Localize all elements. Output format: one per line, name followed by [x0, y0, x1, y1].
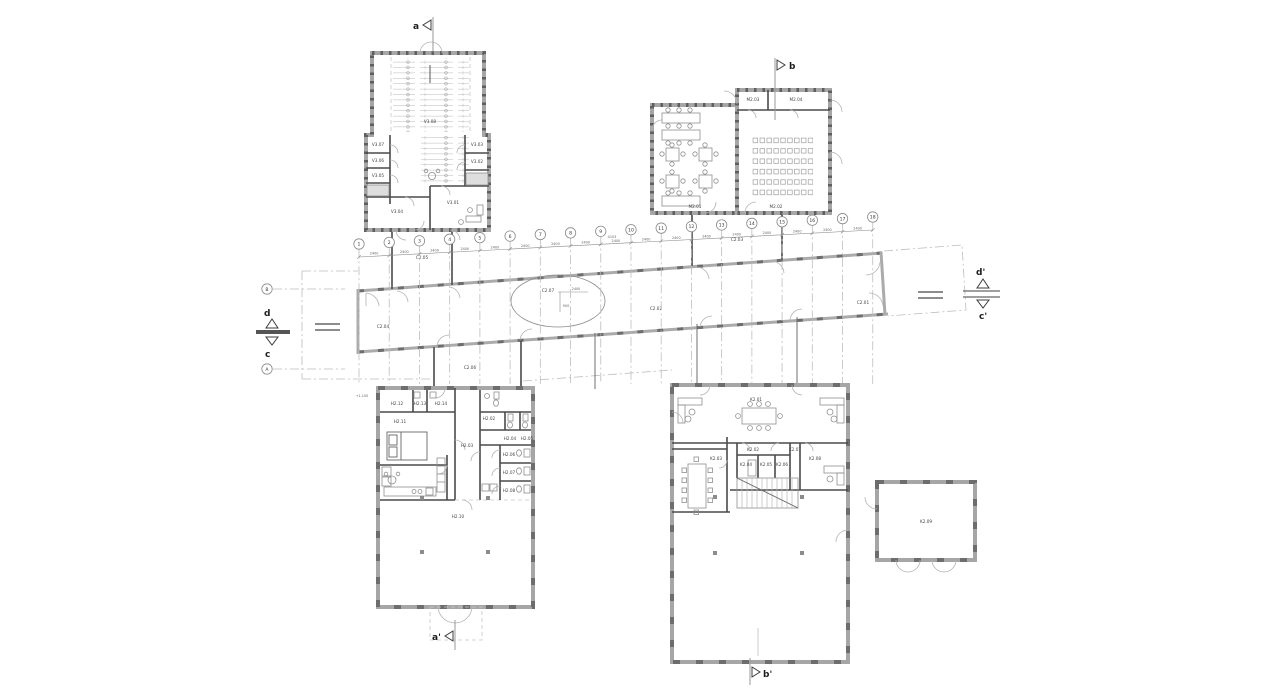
bay-dim: 2400 [763, 231, 772, 235]
grid-number: 18 [870, 215, 876, 221]
grid-dim-wide: 4103 [608, 235, 617, 239]
grid-number: 4 [448, 237, 451, 243]
section-label-c-prime: c' [979, 312, 987, 322]
room-label: V3.03 [471, 142, 484, 147]
corridor: 2400 900 C2.04 C2.05 C2.06 C2.07 C2.02 C… [358, 215, 888, 389]
room-label: H2.03 [461, 443, 474, 448]
grid-number: 15 [779, 219, 785, 225]
section-label-c: c [265, 350, 270, 360]
room-label: H2.04 [504, 436, 517, 441]
bay-dim: 2400 [491, 245, 500, 249]
ellipse-dim-h: 900 [563, 304, 569, 308]
room-label: C2.01 [857, 300, 870, 305]
room-label: H2.13 [414, 401, 427, 406]
grid-number: 5 [478, 235, 481, 241]
room-label: C2.06 [464, 365, 477, 370]
grid-number: 12 [688, 224, 694, 230]
room-label: V3.01 [447, 200, 460, 205]
grid: 1240022400324004240052400624007240082400… [262, 212, 878, 384]
bay-dim: 2400 [642, 237, 651, 241]
room-label: K2.05 [760, 462, 772, 467]
grid-number: 10 [628, 227, 634, 233]
room-label: V3.05 [372, 173, 385, 178]
floor-plan: 2400 900 C2.04 C2.05 C2.06 C2.07 C2.02 C… [0, 0, 1280, 700]
room-label: M2.04 [790, 97, 803, 102]
room-label: C2.04 [377, 324, 390, 329]
bay-dim: 2400 [612, 239, 621, 243]
grid-number: 9 [599, 229, 602, 235]
room-label: H2.10 [452, 514, 465, 519]
room-label: H2.07 [503, 470, 516, 475]
room-label: K2.03 [710, 456, 722, 461]
room-label: C2.02 [650, 306, 663, 311]
bed [387, 432, 427, 460]
room-label: K2.04 [740, 462, 752, 467]
bay-dim: 2400 [702, 234, 711, 238]
room-label: K2.08 [809, 456, 821, 461]
building-dormitory: V3.08 V3.07 V3.06 V3.05 V3.03 V3.02 V3.0… [366, 42, 489, 240]
bay-dim: 2400 [823, 228, 832, 232]
ellipse-dim-w: 2400 [572, 287, 581, 291]
room-label: K2.09 [920, 519, 932, 524]
bay-dim: 2400 [581, 241, 590, 245]
room-label: H2.12 [391, 401, 404, 406]
bay-dim: 2400 [672, 236, 681, 240]
room-label: V3.02 [471, 159, 484, 164]
building-house: H2.12 H2.13 H2.14 H2.11 H2.03 H2.02 H2.0… [356, 388, 534, 640]
room-label: H2.08 [503, 488, 516, 493]
bay-dim: 2400 [430, 249, 439, 253]
section-label-d-prime: d' [976, 268, 985, 278]
grid-number: 16 [809, 218, 815, 224]
room-label: M2.02 [770, 204, 783, 209]
grid-number: 13 [719, 223, 725, 229]
grid-letter: B [265, 287, 268, 293]
room-label: H2.14 [435, 401, 448, 406]
room-label: H2.02 [483, 416, 496, 421]
room-label: V3.04 [391, 209, 404, 214]
room-label: K2.01 [750, 397, 762, 402]
grid-number: 7 [539, 232, 542, 238]
bay-dim: 2400 [551, 242, 560, 246]
grid-number: 14 [749, 221, 755, 227]
bay-dim: 2400 [793, 229, 802, 233]
bay-dim: 2400 [460, 247, 469, 251]
kitchen-counters [382, 458, 445, 496]
building-dining: M2.01 M2.02 M2.03 M2.04 [652, 90, 842, 213]
grid-number: 8 [569, 231, 572, 237]
room-label: K2.02 [747, 447, 759, 452]
bay-dim: 2400 [400, 250, 409, 254]
room-label: V3.06 [372, 158, 385, 163]
canopy-outlines [273, 245, 966, 381]
room-label: V3.08 [424, 119, 437, 124]
section-label-a-prime: a' [432, 633, 441, 643]
grid-number: 1 [358, 242, 361, 248]
bay-dim: 2400 [853, 226, 862, 230]
level-mark: +1.100 [356, 394, 369, 398]
grid-number: 3 [418, 239, 421, 245]
room-label: C2.03 [731, 237, 744, 242]
grid-number: 11 [658, 226, 664, 232]
room-label: H2.11 [394, 419, 407, 424]
grid-number: 2 [388, 240, 391, 246]
room-label: V3.07 [372, 142, 385, 147]
grid-number: 6 [509, 234, 512, 240]
section-label-d: d [264, 309, 270, 319]
dining-tables [660, 108, 718, 206]
section-label-b: b [789, 62, 796, 72]
room-label: H2.06 [503, 452, 516, 457]
room-label: M2.01 [689, 204, 702, 209]
room-label: K2.07 [789, 447, 801, 452]
room-label: C2.07 [542, 288, 555, 293]
room-label: C2.05 [416, 255, 429, 260]
bay-dim: 2400 [521, 244, 530, 248]
room-label: M2.03 [747, 97, 760, 102]
room-label: H2.05 [521, 436, 534, 441]
section-label-a: a [413, 22, 419, 32]
seat-rows [752, 137, 813, 199]
building-shed: K2.09 [865, 482, 975, 572]
building-office: K2.01 K2.02 K2.03 K2.04 K2.05 K2.06 K2.0… [672, 385, 848, 662]
room-label: K2.06 [776, 462, 788, 467]
bay-dim: 2400 [370, 252, 379, 256]
grid-number: 17 [840, 216, 846, 222]
bay-dim: 2400 [732, 233, 741, 237]
stairs [737, 478, 798, 508]
section-label-b-prime: b' [763, 670, 772, 680]
